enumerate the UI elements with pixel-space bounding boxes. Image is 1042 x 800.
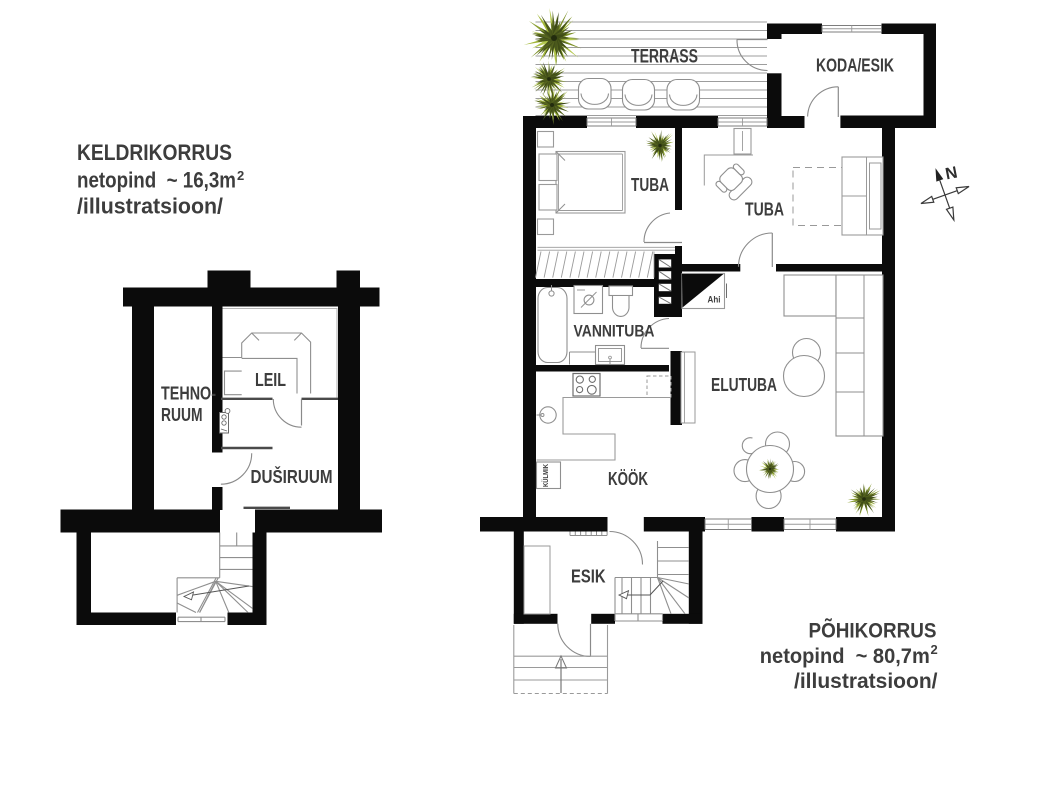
svg-text:VANNITUBA: VANNITUBA: [574, 323, 655, 341]
svg-text:LEIL: LEIL: [255, 370, 286, 390]
svg-text:DUŠIRUUM: DUŠIRUUM: [251, 466, 333, 487]
svg-text:2: 2: [237, 168, 244, 183]
svg-text:TUBA: TUBA: [745, 200, 784, 220]
svg-text:netopind ~ 16,3m: netopind ~ 16,3m: [77, 168, 236, 193]
svg-text:PÕHIKORRUS: PÕHIKORRUS: [809, 619, 937, 643]
svg-text:RUUM: RUUM: [161, 405, 203, 425]
svg-text:KELDRIKORRUS: KELDRIKORRUS: [77, 140, 232, 165]
svg-text:/illustratsioon/: /illustratsioon/: [794, 670, 938, 693]
svg-text:TERRASS: TERRASS: [631, 46, 698, 67]
svg-text:2: 2: [931, 642, 938, 657]
svg-text:Ahi: Ahi: [708, 295, 721, 306]
svg-text:ELUTUBA: ELUTUBA: [711, 375, 777, 395]
svg-text:/illustratsioon/: /illustratsioon/: [77, 194, 223, 219]
svg-text:TUBA: TUBA: [631, 175, 669, 195]
svg-text:KÜLMIK: KÜLMIK: [541, 464, 550, 487]
svg-text:ESIK: ESIK: [571, 567, 606, 587]
svg-text:TEHNO-: TEHNO-: [161, 384, 216, 404]
svg-text:KODA/ESIK: KODA/ESIK: [816, 56, 894, 76]
svg-text:KÖÖK: KÖÖK: [608, 469, 648, 489]
svg-text:netopind ~ 80,7m: netopind ~ 80,7m: [760, 645, 930, 668]
